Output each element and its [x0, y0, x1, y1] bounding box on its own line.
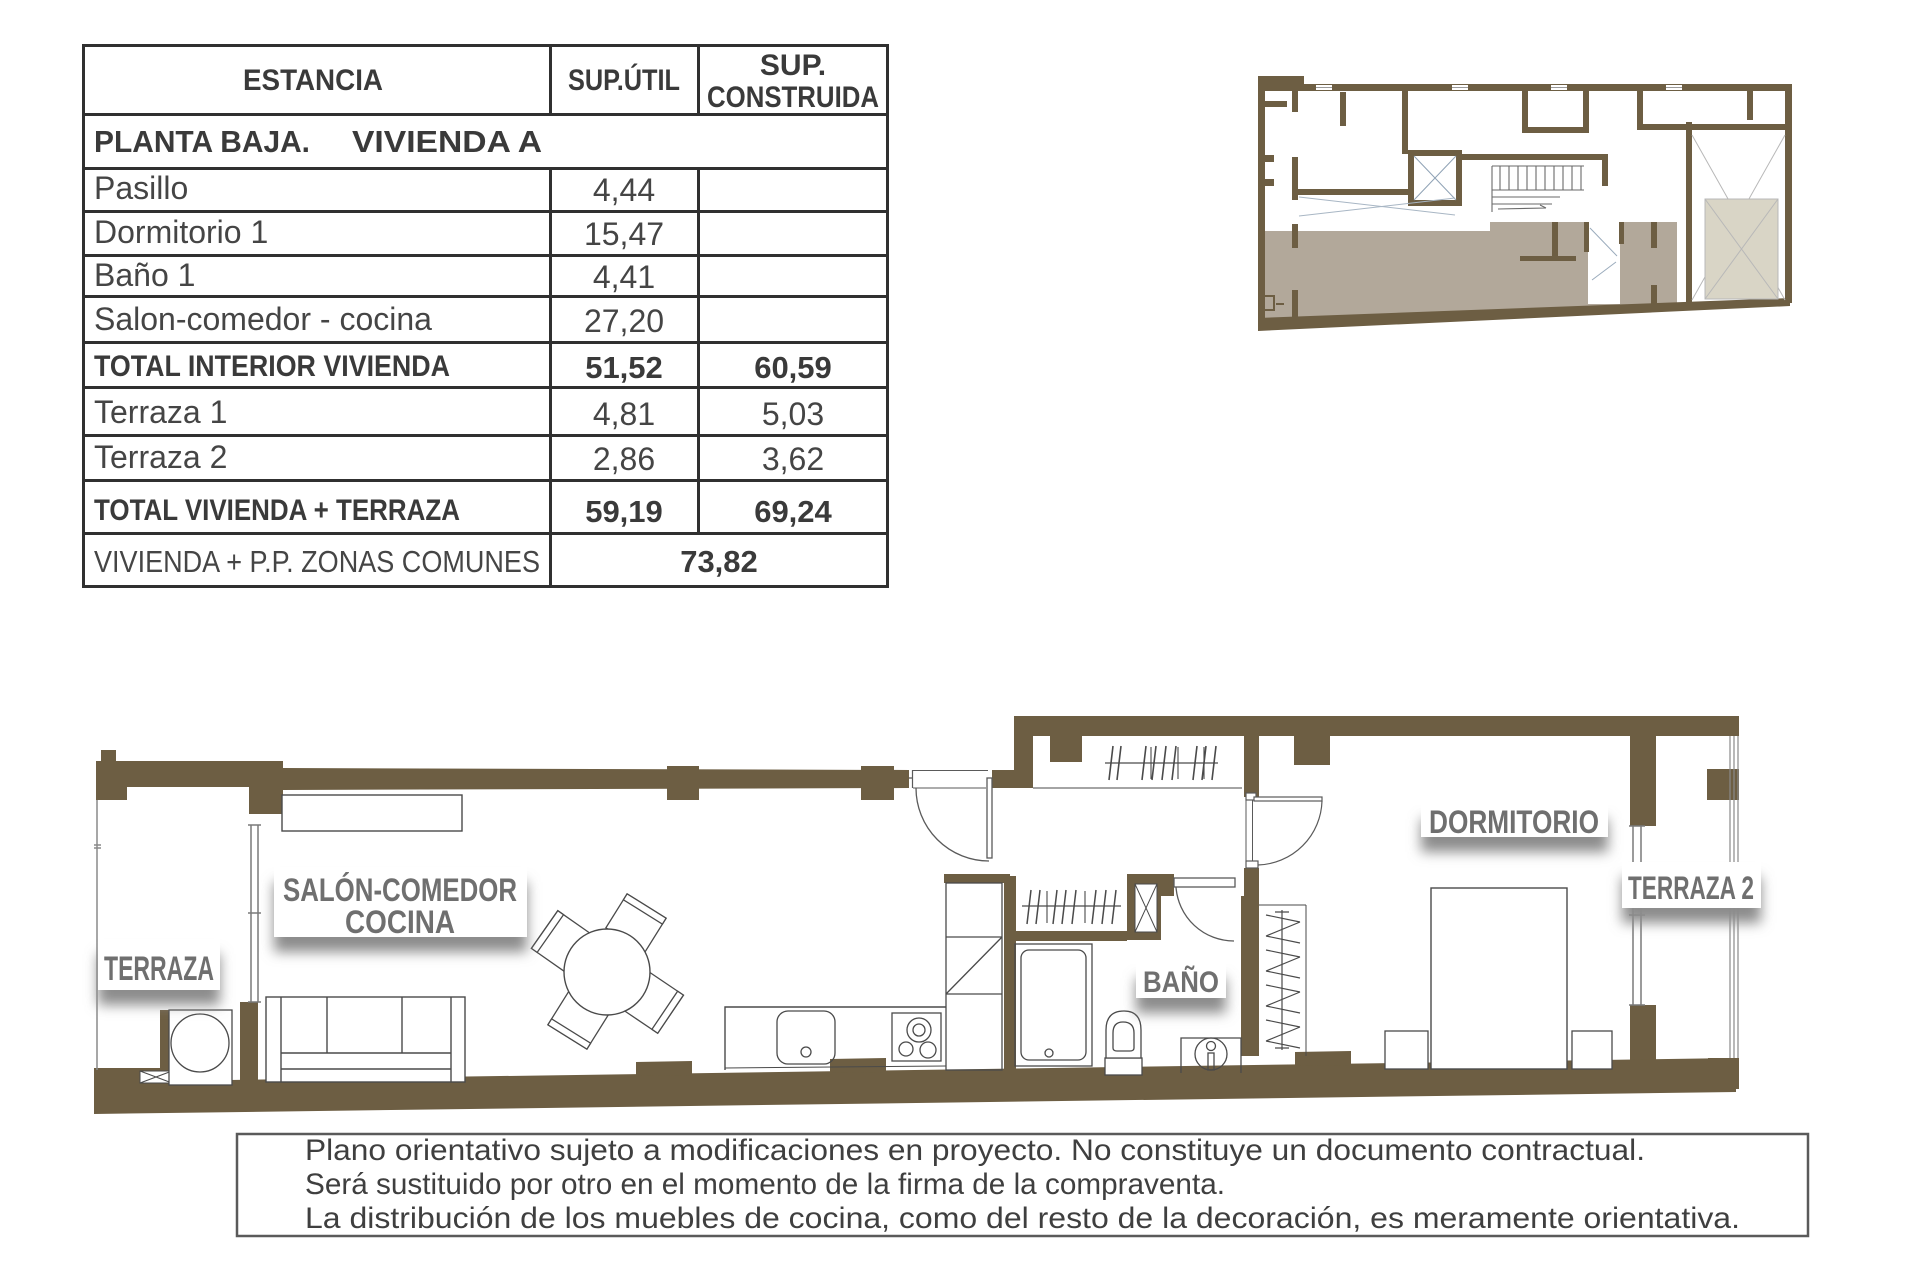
svg-text:Plano orientativo sujeto a mod: Plano orientativo sujeto a modificacione…	[305, 1134, 1645, 1167]
svg-text:4,81: 4,81	[593, 396, 655, 432]
svg-text:SUP.ÚTIL: SUP.ÚTIL	[568, 63, 680, 97]
svg-text:Baño 1: Baño 1	[94, 257, 195, 293]
svg-text:4,41: 4,41	[593, 259, 655, 295]
svg-text:73,82: 73,82	[680, 544, 758, 579]
svg-text:Dormitorio 1: Dormitorio 1	[94, 214, 268, 250]
svg-text:4,44: 4,44	[593, 172, 655, 208]
svg-text:60,59: 60,59	[754, 350, 832, 385]
svg-text:27,20: 27,20	[584, 303, 664, 339]
svg-text:59,19: 59,19	[585, 494, 663, 529]
svg-text:3,62: 3,62	[762, 441, 824, 477]
svg-text:VIVIENDA + P.P. ZONAS COMUNES: VIVIENDA + P.P. ZONAS COMUNES	[94, 544, 540, 579]
svg-text:51,52: 51,52	[585, 350, 663, 385]
svg-text:5,03: 5,03	[762, 396, 824, 432]
svg-text:TOTAL INTERIOR VIVIENDA: TOTAL INTERIOR VIVIENDA	[94, 350, 450, 383]
svg-text:Será sustituido por otro en el: Será sustituido por otro en el momento d…	[305, 1168, 1225, 1201]
svg-text:TERRAZA 2: TERRAZA 2	[1628, 870, 1754, 906]
svg-text:SUP.: SUP.	[760, 49, 826, 82]
svg-text:Pasillo: Pasillo	[94, 170, 188, 206]
svg-text:Terraza 2: Terraza 2	[94, 439, 227, 475]
svg-text:Salon-comedor - cocina: Salon-comedor - cocina	[94, 301, 432, 337]
svg-text:69,24: 69,24	[754, 494, 832, 529]
svg-text:DORMITORIO: DORMITORIO	[1429, 804, 1599, 840]
svg-text:ESTANCIA: ESTANCIA	[243, 64, 383, 97]
svg-text:TERRAZA: TERRAZA	[104, 950, 214, 988]
svg-text:15,47: 15,47	[584, 216, 664, 252]
svg-text:VIVIENDA A: VIVIENDA A	[352, 124, 542, 159]
svg-text:PLANTA BAJA.: PLANTA BAJA.	[94, 124, 310, 159]
svg-text:TOTAL VIVIENDA + TERRAZA: TOTAL VIVIENDA + TERRAZA	[94, 494, 460, 527]
svg-text:Terraza 1: Terraza 1	[94, 394, 227, 430]
svg-text:COCINA: COCINA	[345, 904, 455, 940]
svg-text:La distribución de los muebles: La distribución de los muebles de cocina…	[305, 1202, 1740, 1235]
svg-text:2,86: 2,86	[593, 441, 655, 477]
svg-text:CONSTRUIDA: CONSTRUIDA	[707, 81, 879, 114]
svg-text:SALÓN-COMEDOR: SALÓN-COMEDOR	[283, 872, 517, 908]
svg-text:BAÑO: BAÑO	[1143, 965, 1219, 999]
